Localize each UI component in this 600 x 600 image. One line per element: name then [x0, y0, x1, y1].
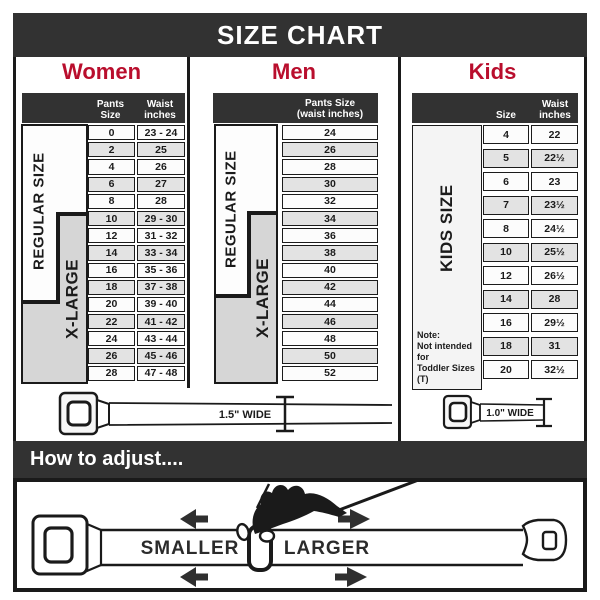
width-measure-mark — [276, 397, 294, 431]
how-to-adjust-heading: How to adjust.... — [30, 448, 183, 471]
kids-table-row: 12 26½ — [483, 266, 578, 285]
pants-size-cell: 16 — [88, 263, 135, 278]
belt-tip — [523, 520, 566, 560]
kids-table-row: 4 22 — [483, 125, 578, 144]
waist-cell: 41 - 42 — [137, 314, 185, 329]
seatbelt-buckle-icon — [33, 516, 101, 574]
title-bar: SIZE CHART — [13, 13, 587, 57]
kids-table-row: 5 22½ — [483, 149, 578, 168]
pants-size-cell: 4 — [88, 159, 135, 174]
men-table-row: 38 — [282, 245, 378, 260]
women-table-row: 14 33 - 34 — [88, 245, 185, 260]
waist-cell: 27 — [137, 177, 185, 192]
women-regular-size-label: REGULAR SIZE — [22, 127, 56, 295]
women-table-row: 26 45 - 46 — [88, 348, 185, 363]
kids-table-row: 14 28 — [483, 290, 578, 309]
pants-size-cell: 50 — [282, 348, 378, 363]
women-table-rows: 0 23 - 24 2 25 4 26 6 2 — [88, 125, 185, 383]
men-table-row: 44 — [282, 297, 378, 312]
pants-size-cell: 2 — [88, 142, 135, 157]
women-table-row: 10 29 - 30 — [88, 211, 185, 226]
waist-cell: 22 — [531, 125, 578, 144]
size-cell: 6 — [483, 172, 529, 191]
kids-note-line2: Not intended for — [417, 341, 472, 362]
outer-right-border — [584, 57, 587, 441]
men-xlarge-label: X-LARGE — [249, 216, 277, 381]
pants-size-cell: 28 — [88, 366, 135, 381]
waist-cell: 25 — [137, 142, 185, 157]
size-cell: 5 — [483, 149, 529, 168]
kids-size-label-box: KIDS SIZE Note: Not intended for Toddler… — [412, 125, 482, 390]
men-table-row: 28 — [282, 159, 378, 174]
pants-size-cell: 6 — [88, 177, 135, 192]
size-cell: 12 — [483, 266, 529, 285]
waist-cell: 23½ — [531, 196, 578, 215]
size-cell: 7 — [483, 196, 529, 215]
waist-cell: 31 — [531, 337, 578, 356]
pants-size-cell: 22 — [88, 314, 135, 329]
waist-cell: 28 — [531, 290, 578, 309]
width-measure-mark — [536, 399, 552, 426]
women-table-row: 24 43 - 44 — [88, 331, 185, 346]
smaller-label: SMALLER — [141, 538, 240, 559]
kids-table-row: 18 31 — [483, 337, 578, 356]
adult-belt-width-label: 1.5" WIDE — [219, 409, 271, 421]
men-table-row: 36 — [282, 228, 378, 243]
size-cell: 10 — [483, 243, 529, 262]
kids-title: Kids — [401, 59, 584, 85]
size-cell: 16 — [483, 313, 529, 332]
waist-cell: 23 — [531, 172, 578, 191]
waist-cell: 35 - 36 — [137, 263, 185, 278]
women-table-row: 18 37 - 38 — [88, 280, 185, 295]
waist-cell: 37 - 38 — [137, 280, 185, 295]
waist-cell: 28 — [137, 194, 185, 209]
waist-cell: 43 - 44 — [137, 331, 185, 346]
women-table-row: 8 28 — [88, 194, 185, 209]
waist-cell: 45 - 46 — [137, 348, 185, 363]
women-table-row: 22 41 - 42 — [88, 314, 185, 329]
arrow-right-bottom — [335, 567, 367, 587]
pants-size-cell: 42 — [282, 280, 378, 295]
pants-size-cell: 48 — [282, 331, 378, 346]
arrow-left-top — [180, 509, 208, 529]
men-table-row: 24 — [282, 125, 378, 140]
men-table-row: 50 — [282, 348, 378, 363]
waist-cell: 29½ — [531, 313, 578, 332]
pants-size-cell: 46 — [282, 314, 378, 329]
seatbelt-buckle-icon — [444, 396, 480, 428]
kids-col-waist-inches: Waist inches — [532, 99, 578, 121]
men-table-row: 40 — [282, 263, 378, 278]
how-to-adjust-illustration: SMALLER LARGER — [13, 478, 587, 592]
kids-table-row: 10 25½ — [483, 243, 578, 262]
kids-belt-width-label: 1.0" WIDE — [486, 408, 534, 419]
women-panel: Women Pants Size Waist inches REGULAR SI… — [16, 57, 187, 441]
waist-cell: 29 - 30 — [137, 211, 185, 226]
waist-cell: 33 - 34 — [137, 245, 185, 260]
men-table-row: 30 — [282, 177, 378, 192]
waist-cell: 31 - 32 — [137, 228, 185, 243]
pants-size-cell: 20 — [88, 297, 135, 312]
kids-col-size: Size — [483, 110, 529, 121]
tables-section: Women Pants Size Waist inches REGULAR SI… — [13, 57, 587, 441]
kids-table-row: 16 29½ — [483, 313, 578, 332]
kids-panel: Kids Size Waist inches KIDS SIZE Note: N… — [401, 57, 584, 441]
waist-cell: 25½ — [531, 243, 578, 262]
men-table-row: 42 — [282, 280, 378, 295]
size-cell: 4 — [483, 125, 529, 144]
kids-table-row: 20 32½ — [483, 360, 578, 379]
size-cell: 18 — [483, 337, 529, 356]
women-table-row: 12 31 - 32 — [88, 228, 185, 243]
men-table-rows: 24 26 28 30 32 — [282, 125, 378, 383]
pants-size-cell: 24 — [88, 331, 135, 346]
pants-size-cell: 32 — [282, 194, 378, 209]
pants-size-cell: 14 — [88, 245, 135, 260]
waist-cell: 47 - 48 — [137, 366, 185, 381]
size-cell: 20 — [483, 360, 529, 379]
pants-size-cell: 34 — [282, 211, 378, 226]
men-table-row: 46 — [282, 314, 378, 329]
waist-cell: 24½ — [531, 219, 578, 238]
size-cell: 8 — [483, 219, 529, 238]
men-table-row: 26 — [282, 142, 378, 157]
page-title: SIZE CHART — [217, 20, 383, 51]
men-regular-size-label: REGULAR SIZE — [215, 127, 247, 291]
women-table-row: 6 27 — [88, 177, 185, 192]
women-table-row: 4 26 — [88, 159, 185, 174]
women-table-row: 2 25 — [88, 142, 185, 157]
pants-size-cell: 28 — [282, 159, 378, 174]
men-table-row: 34 — [282, 211, 378, 226]
kids-table-row: 6 23 — [483, 172, 578, 191]
pants-size-cell: 18 — [88, 280, 135, 295]
women-table-row: 16 35 - 36 — [88, 263, 185, 278]
how-to-adjust-bar: How to adjust.... — [13, 441, 587, 478]
pants-size-cell: 26 — [282, 142, 378, 157]
kids-table-row: 8 24½ — [483, 219, 578, 238]
women-table-row: 20 39 - 40 — [88, 297, 185, 312]
waist-cell: 23 - 24 — [137, 125, 185, 140]
adult-belt-illustration: 1.5" WIDE — [40, 388, 400, 440]
pants-size-cell: 44 — [282, 297, 378, 312]
kids-size-label: KIDS SIZE — [413, 126, 481, 330]
waist-cell: 39 - 40 — [137, 297, 185, 312]
pants-size-cell: 24 — [282, 125, 378, 140]
larger-label: LARGER — [284, 538, 370, 559]
size-cell: 14 — [483, 290, 529, 309]
kids-note: Note: Not intended for Toddler Sizes (T) — [413, 330, 481, 389]
kids-table-rows: 4 22 5 22½ 6 23 7 23½ — [483, 125, 578, 384]
pants-size-cell: 38 — [282, 245, 378, 260]
waist-cell: 26½ — [531, 266, 578, 285]
men-table-row: 52 — [282, 366, 378, 381]
arrow-left-bottom — [180, 567, 208, 587]
kids-belt-illustration: 1.0" WIDE — [436, 392, 586, 436]
kids-note-line3: Toddler Sizes (T) — [417, 363, 475, 384]
women-table-row: 28 47 - 48 — [88, 366, 185, 381]
waist-cell: 32½ — [531, 360, 578, 379]
pants-size-cell: 52 — [282, 366, 378, 381]
kids-table-header: Size Waist inches — [412, 93, 578, 123]
waist-cell: 26 — [137, 159, 185, 174]
women-xlarge-label: X-LARGE — [58, 217, 87, 381]
pants-size-cell: 40 — [282, 263, 378, 278]
men-table-row: 48 — [282, 331, 378, 346]
pants-size-cell: 36 — [282, 228, 378, 243]
size-chart-page: SIZE CHART Women Pants Size Waist inches… — [0, 0, 600, 600]
pants-size-cell: 30 — [282, 177, 378, 192]
pants-size-cell: 12 — [88, 228, 135, 243]
pants-size-cell: 26 — [88, 348, 135, 363]
waist-cell: 22½ — [531, 149, 578, 168]
pants-size-cell: 10 — [88, 211, 135, 226]
men-table-row: 32 — [282, 194, 378, 209]
kids-note-line1: Note: — [417, 330, 440, 340]
kids-table-row: 7 23½ — [483, 196, 578, 215]
women-table-row: 0 23 - 24 — [88, 125, 185, 140]
men-panel: Men Pants Size (waist inches) REGULAR SI… — [190, 57, 398, 441]
pants-size-cell: 8 — [88, 194, 135, 209]
pants-size-cell: 0 — [88, 125, 135, 140]
seatbelt-buckle-icon — [60, 393, 109, 434]
